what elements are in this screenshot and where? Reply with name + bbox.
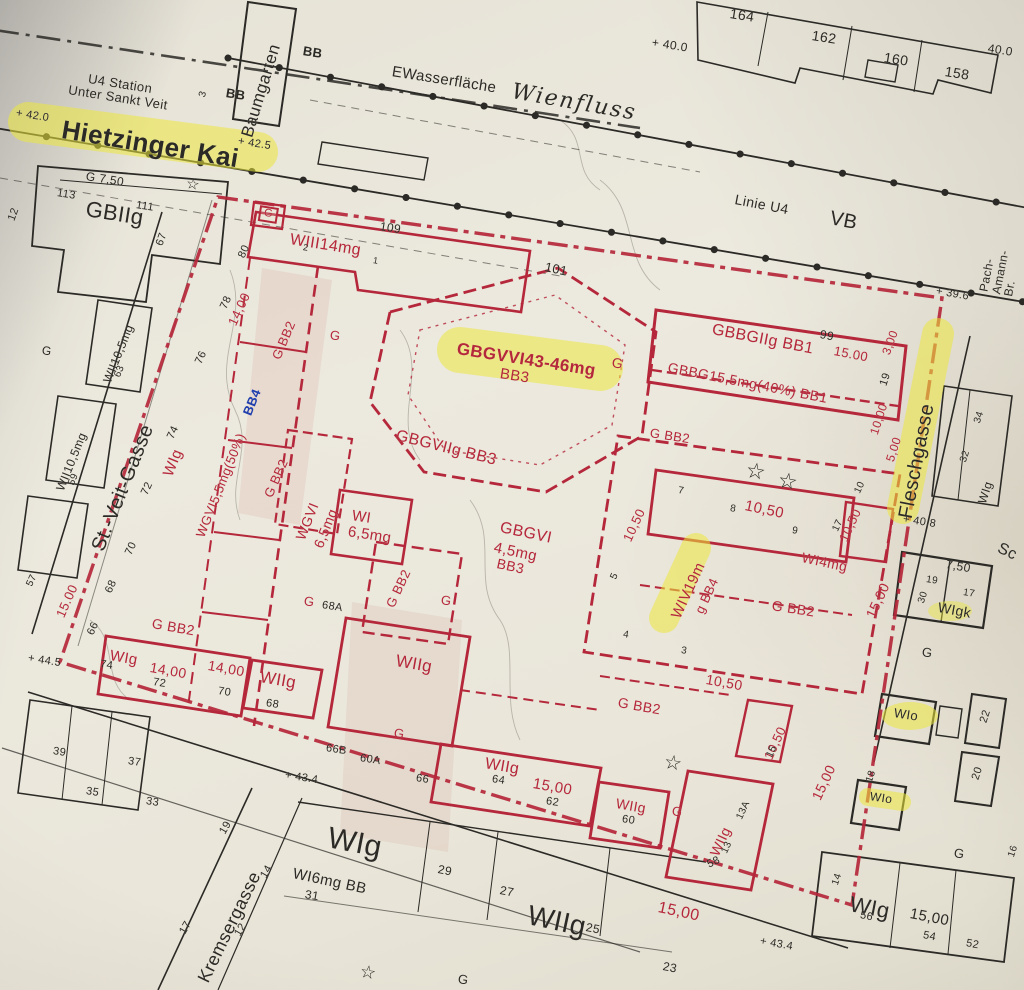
house-number-17d: 17 bbox=[962, 588, 975, 600]
house-number-54: 54 bbox=[922, 930, 937, 944]
zone-g-east-2: G bbox=[953, 846, 966, 861]
bb-label-1: BB bbox=[302, 44, 323, 61]
house-number-60: 60 bbox=[621, 814, 636, 827]
zone-g-60: G bbox=[671, 804, 684, 819]
zone-g-left: G bbox=[41, 344, 53, 358]
house-number-162: 162 bbox=[811, 28, 838, 46]
house-number-72b: 72 bbox=[152, 677, 167, 690]
house-number-62: 62 bbox=[545, 796, 560, 809]
house-number-70b: 70 bbox=[217, 686, 232, 699]
house-number-66c: 66 bbox=[415, 773, 430, 786]
house-number-99: 99 bbox=[819, 328, 835, 343]
zone-g-center-e: G bbox=[611, 355, 624, 371]
house-number-109: 109 bbox=[379, 220, 402, 236]
house-number-19c: 19 bbox=[925, 575, 938, 587]
zone-wio-2: WIo bbox=[869, 790, 893, 806]
zoning-map-photo: U4 Station Unter Sankt Veit + 42.0 Hietz… bbox=[0, 0, 1024, 990]
house-number-56: 56 bbox=[859, 910, 874, 924]
house-number-29: 29 bbox=[437, 863, 453, 878]
house-number-64: 64 bbox=[491, 774, 506, 787]
house-number-35: 35 bbox=[85, 786, 100, 799]
star-symbol-1: ☆ bbox=[744, 458, 767, 484]
house-number-68b: 68 bbox=[265, 698, 280, 711]
bb-label-2: BB bbox=[225, 86, 246, 103]
house-number-158: 158 bbox=[944, 64, 971, 82]
zone-g-center-2: G bbox=[440, 593, 453, 608]
zone-g-east-1: G bbox=[921, 645, 934, 660]
house-number-33: 33 bbox=[145, 796, 160, 809]
house-number-164: 164 bbox=[729, 6, 756, 24]
star-symbol-2: ☆ bbox=[776, 468, 799, 494]
house-number-74b: 74 bbox=[99, 659, 114, 672]
zone-g-68a: G bbox=[303, 594, 316, 609]
star-symbol-3: ☆ bbox=[662, 752, 683, 776]
house-number-23: 23 bbox=[662, 960, 678, 975]
star-symbol-4: ☆ bbox=[359, 962, 378, 983]
house-number-160: 160 bbox=[883, 50, 910, 68]
zone-g-sw-black: G bbox=[457, 972, 470, 987]
house-number-52: 52 bbox=[965, 938, 980, 952]
zone-g-nw: G bbox=[329, 328, 342, 343]
house-number-27: 27 bbox=[499, 884, 515, 899]
house-number-25: 25 bbox=[585, 921, 601, 936]
house-number-39: 39 bbox=[52, 746, 67, 759]
house-number-31: 31 bbox=[304, 888, 320, 903]
zone-g-center-3: G bbox=[393, 726, 406, 741]
zone-g-box: G bbox=[258, 205, 279, 223]
bridge-label-pach-amann: Pach-Amann-Br. bbox=[977, 247, 1023, 298]
star-symbol-gbiig: ☆ bbox=[185, 176, 201, 194]
house-number-37: 37 bbox=[127, 756, 142, 769]
